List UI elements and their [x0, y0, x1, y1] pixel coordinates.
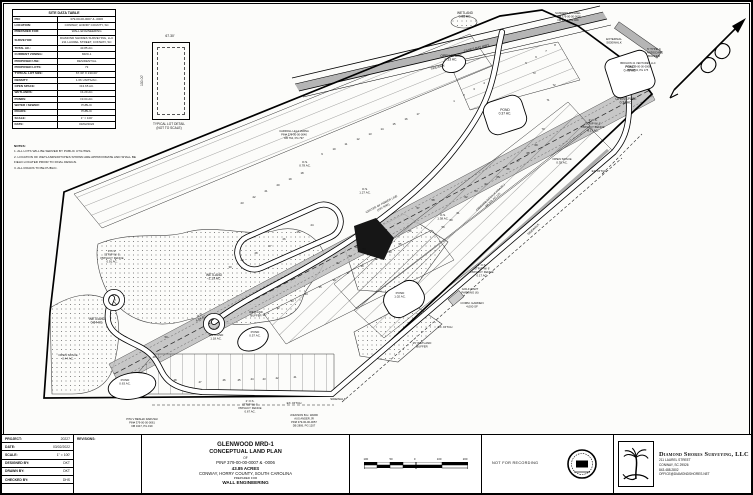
drawing-title-line: WALL ENGINEERING — [222, 480, 268, 486]
lot-number: 18 — [300, 171, 304, 175]
plan-label: 5' TYPE CLANDSCAPEBUFFER — [645, 47, 663, 58]
surveyor-firm-box: Diamond Shores Surveying, LLC 211 LAUREL… — [614, 435, 753, 493]
plan-label: POND1.02 AC. — [394, 291, 406, 299]
plan-label: 2' O.S.STRIP W/ 6'PRIVACY FENCE0.67 AC. — [238, 399, 261, 414]
lot-depth-dimension: 130.00' — [140, 42, 148, 118]
note-item: 3. ALL ROADS TO BE PUBLIC. — [14, 166, 139, 170]
lot-number: 62 — [464, 195, 468, 199]
lot-number: 37 — [346, 271, 350, 275]
lot-number: 11 — [345, 142, 348, 146]
lot-number: 48 — [173, 378, 177, 382]
notes-heading: NOTES: — [14, 144, 139, 148]
lot-number: 63 — [474, 189, 478, 193]
lot-number: 56 — [408, 229, 412, 233]
lot-number: 38 — [360, 264, 364, 268]
lot-number: 15 — [392, 122, 396, 126]
plan-label: POND0.63 AC. — [119, 378, 131, 386]
plan-label: PITA V BESHAI DARUSHIPIN# 379-00-00-0061… — [126, 417, 158, 428]
lot-outline — [152, 42, 190, 120]
plan-label: WETLAND0.08 AC. — [457, 11, 474, 19]
graphic-scale-bar — [364, 462, 468, 472]
lot-number: 72 — [552, 83, 556, 87]
lot-number: 17 — [416, 112, 420, 116]
recording-stamp-box: NOT FOR RECORDING — [482, 435, 614, 493]
lot-number: 32 — [276, 306, 280, 310]
lot-number: 70 — [541, 127, 545, 131]
not-for-recording-text: NOT FOR RECORDING — [492, 461, 538, 465]
project-info-row: DESIGNED BY:DKT — [2, 460, 73, 468]
plan-label: POND0.37 AC. — [499, 108, 512, 116]
lot-number: 73 — [532, 71, 536, 75]
lot-number: 13 — [368, 132, 372, 136]
site-data-table: SITE DATA TABLE PIN:379-00-00-0007 & -00… — [12, 9, 116, 129]
lot-number: 24 — [310, 223, 314, 227]
lot-number: 40 — [388, 250, 392, 254]
lot-number: 60 — [449, 218, 453, 222]
lot-number: 54 — [362, 247, 366, 251]
project-info-row: DATE:03/02/2022 — [2, 443, 73, 451]
lot-number: 55 — [398, 242, 402, 246]
lot-number: 29 — [240, 258, 244, 262]
lot-number: 71 — [546, 98, 550, 102]
lot-number: 65 — [496, 175, 500, 179]
lot-number: 39 — [374, 257, 378, 261]
plan-label: EX. DITCH — [592, 169, 607, 173]
lot-number: 58 — [431, 198, 435, 202]
lot-number: 27 — [268, 244, 272, 248]
plan-label: SIDEWALK — [330, 397, 345, 401]
site-table-row: DATE:03/02/2022 — [13, 122, 116, 128]
north-arrow-icon — [670, 18, 746, 98]
firm-email: OFFICE@DIAMONDSHORES.NET — [659, 472, 749, 477]
lot-number: 23 — [240, 201, 244, 205]
setback-line — [157, 47, 185, 115]
scale-bar-box: 100500100200 — [350, 435, 482, 493]
lot-number: 21 — [264, 189, 268, 193]
lot-number: 41 — [293, 375, 297, 379]
surveyor-seal-icon — [565, 447, 599, 481]
plan-label: EX. DITCH — [287, 401, 302, 405]
lot-number: 14 — [380, 127, 384, 131]
lot-number: 20 — [276, 183, 280, 187]
plan-label: GOLF CARTPARKING (6) — [461, 287, 478, 295]
plan-label: O.S.1.27 AC. — [359, 187, 371, 195]
lot-number: 52 — [336, 261, 340, 265]
lot-number: 34 — [304, 292, 308, 296]
lot-number: 68 — [526, 151, 530, 155]
lot-number: 42 — [275, 376, 279, 380]
lot-number: 57 — [416, 206, 420, 210]
plan-label: EXTERNALSIDEWALK — [606, 37, 622, 45]
plan-label: POND0.45 AC. — [624, 65, 637, 73]
lot-number: 22 — [252, 195, 256, 199]
plan-label: WETLAND1.18 AC. — [209, 333, 225, 341]
lot-number: 35 — [318, 285, 322, 289]
revisions-label: REVISIONS: — [74, 435, 141, 443]
plan-label: WETLAND0.84 AC. — [89, 317, 106, 325]
lot-number: 45 — [237, 378, 241, 382]
lot-number: 12 — [356, 137, 360, 141]
note-item: 1. ALL LOTS WILL BE SERVED BY PUBLIC UTI… — [14, 149, 139, 153]
drawing-title-box: GLENWOOD MRD-1CONCEPTUAL LAND PLANOFPIN#… — [142, 435, 350, 493]
project-info-row: DRAWN BY:DKT — [2, 468, 73, 476]
drawing-title-line: CONCEPTUAL LAND PLAN — [209, 449, 282, 456]
lot-number: 28 — [254, 251, 258, 255]
plan-label: O.S.0.78 AC. — [299, 160, 311, 168]
drawing-title-line: GLENWOOD MRD-1 — [217, 442, 274, 450]
typical-lot-detail: 67.30' 130.00' TYPICAL LOT DETAIL (NOT T… — [124, 26, 214, 138]
project-info-row: PROJECT:20227 — [2, 435, 73, 443]
lot-number: 47 — [198, 380, 202, 384]
plan-label: EX. DITCH — [438, 325, 453, 329]
lot-detail-caption: TYPICAL LOT DETAIL (NOT TO SCALE) — [124, 122, 214, 130]
lot-number: 33 — [290, 299, 294, 303]
lot-number: 61 — [456, 211, 460, 215]
lot-number: 26 — [282, 237, 286, 241]
project-info-row: CHECKED BY:DHS — [2, 476, 73, 484]
plan-label: COMM. GARDEN4,000 SF — [460, 301, 483, 309]
site-table-title: SITE DATA TABLE — [13, 10, 116, 17]
lot-number: 67 — [516, 159, 520, 163]
lot-number: 10 — [332, 147, 336, 151]
lot-number: 50 — [164, 335, 168, 339]
lot-number: 16 — [404, 117, 408, 121]
plan-label: JOHNSON B.H. WARDAUS ANDER JRPIN# 379-00… — [290, 413, 318, 428]
revisions-box: REVISIONS: — [74, 435, 142, 493]
lot-number: 19 — [288, 177, 292, 181]
scale-bar-ticks: 100500100200 — [364, 457, 468, 461]
lot-number: 9 — [321, 152, 323, 156]
title-block: PROJECT:20227DATE:03/02/2022SCALE:1" = 1… — [2, 434, 751, 493]
lot-number: 36 — [332, 278, 336, 282]
lot-number: 1 — [453, 99, 455, 103]
lot-number: 31 — [262, 313, 266, 317]
lot-number: 49 — [152, 355, 156, 359]
plan-label: 25' WETLANDBUFFER — [413, 341, 432, 349]
plan-label: SANDERS MICHAELPIN# 379-00-00-0005DB 441… — [555, 11, 581, 22]
note-item: 2. LOCATION OF WETLANDS/DITCHES SHOWN AR… — [14, 155, 139, 164]
plan-sheet: WETLAND0.08 AC.OPEN SPACE0.33 AC.SANDERS… — [0, 0, 753, 495]
lot-number: 69 — [534, 143, 538, 147]
notes-block: NOTES: 1. ALL LOTS WILL BE SERVED BY PUB… — [14, 144, 139, 172]
firm-name: Diamond Shores Surveying, LLC — [659, 451, 749, 458]
project-info-row: SCALE:1" = 100' — [2, 451, 73, 459]
site-table-row: SURVEYOR:DIAMOND SHORES SURVEYING, LLC 2… — [13, 36, 116, 46]
plan-label: WETLAND~2.19 AC. — [206, 273, 223, 281]
plan-label: WETLANDBUFFER — [249, 310, 263, 318]
lot-number: 66 — [506, 167, 510, 171]
lot-number: 43 — [262, 377, 266, 381]
lot-width-dimension: 67.30' — [152, 34, 188, 38]
lot-number: 46 — [222, 378, 226, 382]
lot-number: 59 — [441, 225, 445, 229]
lot-number: 25 — [296, 230, 300, 234]
lot-number: 53 — [348, 254, 352, 258]
project-info-box: PROJECT:20227DATE:03/02/2022SCALE:1" = 1… — [2, 435, 74, 493]
lot-number: 44 — [250, 377, 254, 381]
lot-number: 30 — [228, 265, 232, 269]
lot-number: 64 — [484, 182, 488, 186]
lot-number: 51 — [354, 245, 358, 249]
plan-label: POND0.57 AC. — [249, 330, 261, 338]
palm-tree-logo — [618, 441, 654, 487]
